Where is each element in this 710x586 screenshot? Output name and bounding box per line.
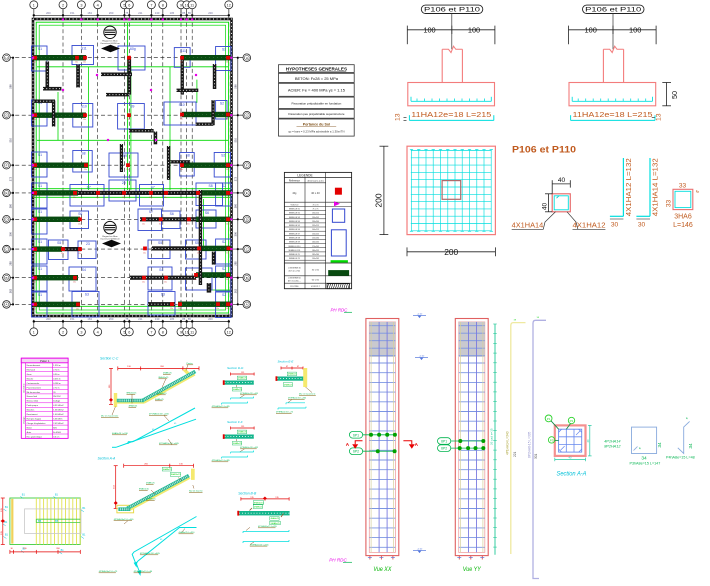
svg-text:4HA8e25: 4HA8e25 [284, 383, 293, 386]
svg-text:185x260: 185x260 [312, 254, 319, 256]
svg-text:1: 1 [33, 330, 35, 334]
svg-text:200: 200 [46, 317, 51, 321]
svg-text:SEMELLE S9: SEMELLE S9 [289, 242, 300, 244]
svg-text:100: 100 [468, 26, 480, 35]
svg-text:15x: 15x [187, 223, 190, 225]
svg-text:6: 6 [128, 3, 130, 7]
svg-text:200: 200 [208, 317, 213, 321]
svg-text:dimensions (cm): dimensions (cm) [307, 181, 323, 183]
svg-text:301: 301 [534, 453, 538, 459]
svg-text:40 x 40: 40 x 40 [311, 191, 320, 195]
svg-text:15x: 15x [127, 62, 130, 64]
svg-text:6P2: 6P2 [441, 447, 447, 451]
svg-text:7: 7 [150, 330, 152, 334]
svg-text:S2: S2 [222, 267, 226, 271]
svg-text:135: 135 [241, 372, 244, 374]
svg-text:15x: 15x [143, 252, 146, 254]
svg-text:6P1: 6P1 [353, 433, 359, 437]
svg-text:A: A [246, 303, 248, 307]
svg-text:B5: B5 [38, 519, 42, 523]
svg-text:13: 13 [656, 113, 663, 121]
svg-text:4HA8e25: 4HA8e25 [233, 388, 242, 391]
svg-text:33: 33 [665, 200, 672, 208]
svg-text:211: 211 [138, 11, 143, 15]
svg-text:4HA8e25: 4HA8e25 [238, 377, 247, 380]
svg-text:262: 262 [233, 288, 237, 293]
svg-text:Charge d'exploitation: Charge d'exploitation [27, 422, 46, 425]
svg-text:85: 85 [182, 11, 185, 15]
svg-text:P2: P2 [570, 419, 574, 423]
svg-text:262: 262 [8, 288, 12, 293]
svg-text:5.36 kN/m: 5.36 kN/m [53, 419, 62, 421]
svg-text:Contremarche: Contremarche [27, 382, 41, 385]
svg-text:11HA12e=18 L=215: 11HA12e=18 L=215 [573, 110, 653, 119]
svg-text:180x255: 180x255 [312, 250, 319, 252]
svg-text:200: 200 [208, 11, 213, 15]
svg-text:15x: 15x [142, 223, 145, 225]
svg-text:+0.00: +0.00 [419, 355, 425, 357]
svg-text:190x265: 190x265 [312, 258, 319, 260]
svg-text:30: 30 [611, 222, 619, 229]
svg-text:SEMELLE S11: SEMELLE S11 [288, 250, 300, 252]
svg-text:0.186 m: 0.186 m [53, 383, 61, 385]
svg-text:60g: 60g [130, 47, 136, 51]
svg-text:0.30 m: 0.30 m [53, 374, 59, 376]
svg-text:SEMELLE 23: SEMELLE 23 [289, 258, 300, 260]
svg-text:163: 163 [87, 11, 92, 15]
svg-text:75 x 75: 75 x 75 [312, 209, 318, 211]
svg-text:H: H [246, 56, 248, 60]
svg-text:Niveau initial: Niveau initial [27, 400, 39, 403]
svg-text:F: F [6, 164, 8, 168]
svg-text:40g: 40g [292, 192, 297, 195]
svg-text:Portance du Sol: Portance du Sol [303, 123, 330, 127]
svg-text:S9: S9 [123, 154, 127, 158]
svg-text:15x: 15x [197, 252, 200, 254]
svg-text:12: 12 [227, 330, 231, 334]
svg-text:1: 1 [33, 3, 35, 7]
svg-text:SEMELLE S8: SEMELLE S8 [289, 238, 300, 240]
svg-text:200: 200 [374, 193, 384, 207]
svg-text:4HA8e25: 4HA8e25 [163, 468, 172, 471]
svg-text:221: 221 [513, 451, 517, 457]
svg-text:VOIR PLT: VOIR PLT [311, 286, 321, 288]
svg-text:15x: 15x [226, 308, 229, 310]
svg-text:S1: S1 [38, 153, 42, 157]
svg-text:8: 8 [162, 330, 164, 334]
svg-text:Beton: Beton [27, 426, 32, 429]
svg-text:130: 130 [155, 317, 160, 321]
svg-text:15x: 15x [96, 197, 99, 199]
svg-text:85: 85 [182, 317, 185, 321]
svg-text:11: 11 [190, 3, 194, 7]
svg-text:2.42 kN/m2: 2.42 kN/m2 [53, 423, 64, 425]
svg-text:S6: S6 [78, 212, 82, 216]
svg-text:VOILE 20: VOILE 20 [291, 204, 299, 206]
svg-text:15x: 15x [164, 282, 167, 284]
svg-text:S2: S2 [222, 184, 226, 188]
svg-text:A: A [5, 303, 7, 307]
svg-text:S1: S1 [38, 267, 42, 271]
svg-text:Revetement: Revetement [27, 413, 38, 416]
svg-text:560: 560 [9, 84, 13, 89]
svg-text:S2: S2 [222, 293, 226, 297]
svg-text:15x: 15x [75, 62, 78, 64]
svg-text:S6: S6 [170, 212, 174, 216]
svg-text:15x: 15x [226, 279, 229, 281]
svg-text:Dallage: Dallage [53, 401, 61, 403]
svg-text:S11: S11 [81, 47, 87, 51]
svg-text:15x: 15x [33, 119, 36, 121]
svg-text:BETON: Fc28 = 25 MPa: BETON: Fc28 = 25 MPa [295, 76, 339, 81]
svg-text:34: 34 [688, 443, 694, 449]
svg-text:S1: S1 [38, 184, 42, 188]
svg-text:S2: S2 [222, 48, 226, 52]
svg-text:15x: 15x [142, 282, 145, 284]
svg-text:0.055 m: 0.055 m [53, 378, 61, 380]
svg-text:15x: 15x [164, 197, 167, 199]
svg-text:15x: 15x [226, 223, 229, 225]
svg-text:75: 75 [125, 317, 128, 321]
svg-text:4HA8e25: 4HA8e25 [288, 373, 297, 376]
svg-text:7: 7 [150, 3, 152, 7]
svg-text:4: 4 [97, 330, 99, 334]
svg-text:SEMELLE S6: SEMELLE S6 [289, 229, 300, 231]
svg-text:S8: S8 [186, 154, 190, 158]
svg-text:P1: P1 [547, 417, 551, 421]
svg-text:Section D-D: Section D-D [227, 366, 244, 370]
svg-text:E: E [5, 191, 7, 195]
svg-text:200: 200 [46, 11, 51, 15]
svg-text:170x245: 170x245 [312, 246, 319, 248]
svg-text:S6: S6 [205, 211, 209, 215]
svg-text:POUTRE: POUTRE [290, 286, 299, 288]
svg-text:15x: 15x [196, 197, 199, 199]
svg-text:8: 8 [162, 3, 164, 7]
svg-text:75: 75 [125, 11, 128, 15]
svg-text:Rampes d'appui: Rampes d'appui [27, 419, 42, 421]
svg-text:130x200: 130x200 [312, 221, 319, 223]
svg-text:Enr. geometrique: Enr. geometrique [27, 435, 43, 438]
svg-text:PH RDC: PH RDC [331, 308, 349, 313]
svg-text:Vue XX: Vue XX [373, 566, 392, 573]
svg-text:15x: 15x [159, 223, 162, 225]
svg-text:135: 135 [1, 530, 3, 534]
svg-text:PH RDC: PH RDC [53, 396, 61, 398]
svg-text:15x: 15x [76, 308, 79, 310]
svg-text:30: 30 [638, 222, 646, 229]
svg-text:S2: S2 [222, 240, 226, 244]
svg-text:12: 12 [227, 3, 231, 7]
svg-text:15x: 15x [216, 308, 219, 310]
svg-text:11HA12e=18 L=215: 11HA12e=18 L=215 [411, 110, 491, 119]
svg-text:S4: S4 [159, 268, 163, 272]
svg-text:15x: 15x [78, 223, 81, 225]
svg-text:15x: 15x [194, 279, 197, 281]
svg-text:S2: S2 [220, 102, 224, 106]
svg-text:4X1HA12: 4X1HA12 [573, 220, 606, 229]
svg-text:9: 9 [180, 330, 182, 334]
svg-text:E: E [246, 191, 248, 195]
svg-text:151: 151 [70, 317, 75, 321]
svg-text:P4hA8e=15 L=48: P4hA8e=15 L=48 [666, 456, 695, 460]
svg-text:Section A-A: Section A-A [557, 471, 588, 478]
svg-text:+0.00: +0.00 [417, 313, 423, 315]
svg-text:285: 285 [233, 261, 237, 266]
svg-text:11: 11 [190, 330, 194, 334]
svg-text:(B.T.2) L≥60+...: (B.T.2) L≥60+... [288, 280, 301, 283]
svg-text:67: 67 [286, 366, 288, 368]
svg-text:S1: S1 [38, 240, 42, 244]
svg-text:Section B-B: Section B-B [238, 492, 257, 496]
svg-text:Ouverture 60X60cm: Ouverture 60X60cm [100, 42, 120, 45]
svg-text:Giron: Giron [27, 374, 32, 376]
svg-text:6P1: 6P1 [441, 440, 447, 444]
svg-text:15x: 15x [83, 62, 86, 64]
svg-text:SEMELLE 29: SEMELLE 29 [289, 254, 300, 256]
svg-text:560: 560 [233, 84, 237, 89]
svg-text:15x: 15x [73, 282, 76, 284]
svg-text:8HA10e15: 8HA10e15 [254, 501, 264, 504]
svg-text:151: 151 [70, 11, 75, 15]
svg-text:P3hA8e=15 L=147: P3hA8e=15 L=147 [630, 462, 661, 466]
svg-text:B5: B5 [55, 519, 59, 523]
svg-text:Fe E500: Fe E500 [53, 432, 61, 434]
svg-text:2.70 m: 2.70 m [53, 370, 59, 372]
svg-text:Marches: Marches [27, 410, 35, 412]
svg-text:163: 163 [87, 317, 92, 321]
svg-text:S3: S3 [161, 293, 165, 297]
svg-text:272: 272 [233, 176, 237, 181]
svg-text:1.00 kN/m2: 1.00 kN/m2 [53, 414, 64, 416]
svg-text:4.31 kN/m2: 4.31 kN/m2 [53, 405, 64, 407]
svg-text:40: 40 [558, 177, 566, 184]
svg-text:Poids propre: Poids propre [27, 405, 39, 407]
svg-text:4X1HA14 L=132: 4X1HA14 L=132 [652, 158, 659, 216]
svg-text:13: 13 [395, 113, 402, 121]
svg-text:P3: P3 [550, 438, 554, 442]
svg-text:155x230: 155x230 [312, 238, 319, 240]
svg-text:4HA8e25: 4HA8e25 [233, 442, 242, 445]
svg-text:P106 et P110: P106 et P110 [512, 145, 576, 156]
svg-text:2.72 m: 2.72 m [53, 387, 59, 389]
svg-text:qu = bars = 0.23 MPa admissibl: qu = bars = 0.23 MPa admissible a 1.30m/… [288, 130, 344, 134]
svg-text:SEMELLE S4: SEMELLE S4 [289, 221, 300, 223]
svg-text:15x: 15x [170, 308, 173, 310]
svg-text:15x: 15x [33, 197, 36, 199]
svg-text:S10: S10 [179, 103, 185, 107]
svg-text:510: 510 [233, 137, 237, 142]
svg-text:S1: S1 [38, 47, 42, 51]
svg-text:105: 105 [170, 11, 175, 15]
svg-text:23: 23 [86, 242, 90, 246]
svg-text:6: 6 [128, 330, 130, 334]
svg-text:15x: 15x [78, 253, 81, 255]
svg-text:200: 200 [444, 247, 458, 257]
svg-text:15x: 15x [33, 62, 36, 64]
svg-text:S5: S5 [158, 241, 162, 245]
svg-text:Marche: Marche [27, 378, 35, 380]
svg-text:S5: S5 [195, 241, 199, 245]
svg-text:8P2HA12: 8P2HA12 [604, 445, 621, 449]
svg-text:70 x 70: 70 x 70 [312, 204, 318, 206]
svg-text:Vue YY: Vue YY [463, 566, 482, 573]
svg-text:SEMELLE S10: SEMELLE S10 [288, 246, 300, 248]
svg-text:Reference: Reference [289, 180, 301, 183]
svg-text:S8: S8 [81, 152, 85, 156]
svg-text:100: 100 [423, 26, 435, 35]
svg-text:60 x 60: 60 x 60 [312, 279, 320, 281]
svg-text:Geometrie: Geometrie [23, 383, 26, 393]
svg-text:140x215: 140x215 [312, 229, 319, 231]
svg-text:3.3 cm: 3.3 cm [53, 436, 59, 438]
svg-text:4X1HA14: 4X1HA14 [512, 220, 544, 229]
svg-text:15x: 15x [61, 253, 64, 255]
svg-text:SEMELLE S5: SEMELLE S5 [289, 225, 300, 227]
svg-text:100: 100 [585, 26, 597, 35]
svg-text:4: 4 [97, 3, 99, 7]
svg-text:15x: 15x [126, 169, 129, 171]
svg-text:SEMELLE S2: SEMELLE S2 [289, 213, 300, 215]
svg-text:15x: 15x [226, 252, 229, 254]
svg-text:15x: 15x [178, 308, 181, 310]
svg-text:S3: S3 [85, 293, 89, 297]
svg-text:P106 et P110: P106 et P110 [424, 7, 480, 14]
svg-text:15x: 15x [226, 62, 229, 64]
svg-text:100: 100 [629, 26, 641, 35]
svg-text:4P1HA14 L=340: 4P1HA14 L=340 [506, 431, 510, 455]
svg-text:SEMELLE S3: SEMELLE S3 [289, 217, 300, 219]
svg-text:160x235: 160x235 [312, 242, 319, 244]
svg-text:Palier 1: Palier 1 [40, 359, 50, 363]
svg-text:PH RDC: PH RDC [329, 558, 347, 563]
svg-text:15x: 15x [83, 119, 86, 121]
svg-text:Franchissement: Franchissement [27, 386, 42, 389]
svg-text:8HA10e15: 8HA10e15 [171, 473, 181, 476]
svg-text:15x: 15x [33, 282, 36, 284]
svg-text:Section C-C: Section C-C [100, 357, 119, 361]
svg-text:272: 272 [9, 176, 13, 181]
svg-text:SEMELLE S1: SEMELLE S1 [289, 209, 300, 211]
svg-text:ACIER: Fe = 400 MPa γs = 1.: ACIER: Fe = 400 MPa γs = 1.15 [288, 88, 346, 93]
svg-text:4X1HA12 L=132: 4X1HA12 L=132 [626, 158, 633, 216]
svg-text:29: 29 [122, 181, 126, 185]
svg-text:260: 260 [9, 203, 13, 208]
svg-text:B: B [5, 276, 7, 280]
svg-text:130: 130 [155, 11, 160, 15]
svg-text:Fissuration préjudiciable en f: Fissuration préjudiciable en fondation [292, 102, 342, 106]
svg-text:15x: 15x [180, 62, 183, 64]
svg-text:S8: S8 [209, 184, 213, 188]
svg-text:LONGRINE 60: LONGRINE 60 [288, 278, 301, 280]
svg-text:S5: S5 [57, 241, 61, 245]
svg-text:Section E-E: Section E-E [278, 360, 295, 364]
svg-text:Fissuration peu préjudiciable: Fissuration peu préjudiciable superstruc… [288, 112, 344, 116]
svg-text:8P2HA8-15 L=335: 8P2HA8-15 L=335 [528, 431, 532, 458]
svg-text:2: 2 [62, 330, 64, 334]
svg-text:S4: S4 [82, 268, 86, 272]
svg-text:StHA8e25: StHA8e25 [271, 522, 281, 525]
svg-text:15x: 15x [84, 169, 87, 171]
svg-text:300: 300 [9, 231, 13, 236]
svg-text:300: 300 [233, 231, 237, 236]
svg-text:B: B [246, 276, 248, 280]
svg-text:211: 211 [138, 317, 143, 321]
svg-text:50: 50 [670, 91, 679, 99]
svg-text:3HA6: 3HA6 [674, 213, 692, 220]
svg-text:S7: S7 [149, 210, 153, 214]
svg-text:15x: 15x [33, 169, 36, 171]
svg-text:Emmarch: Emmarch [27, 370, 36, 372]
svg-text:15x: 15x [226, 119, 229, 121]
svg-text:S7: S7 [87, 186, 91, 190]
svg-text:15x: 15x [180, 169, 183, 171]
svg-text:Ouverture 60X60cm: Ouverture 60X60cm [100, 238, 120, 241]
svg-text:LONGRINE 30: LONGRINE 30 [288, 267, 301, 269]
svg-text:15x: 15x [149, 197, 152, 199]
svg-text:15x: 15x [122, 197, 125, 199]
svg-text:Niveau final: Niveau final [27, 396, 38, 398]
svg-text:S1: S1 [38, 210, 42, 214]
svg-text:285: 285 [9, 261, 13, 266]
svg-text:Encombrement: Encombrement [27, 364, 41, 367]
svg-text:3: 3 [80, 330, 82, 334]
svg-text:130x205: 130x205 [312, 217, 319, 219]
svg-text:135: 135 [241, 426, 244, 428]
svg-text:105: 105 [170, 317, 175, 321]
svg-text:26 cad e=15: 26 cad e=15 [489, 428, 493, 445]
svg-text:150x225: 150x225 [312, 233, 319, 235]
svg-text:40: 40 [542, 203, 549, 211]
svg-text:15x: 15x [33, 253, 36, 255]
svg-text:2: 2 [62, 3, 64, 7]
svg-text:LEGENDE: LEGENDE [297, 173, 312, 177]
svg-text:15x: 15x [127, 119, 130, 121]
svg-text:33: 33 [679, 182, 687, 189]
svg-text:1.36 kN/m2: 1.36 kN/m2 [53, 410, 64, 412]
svg-text:S7: S7 [151, 186, 155, 190]
svg-text:1.350 m: 1.350 m [53, 365, 61, 367]
svg-text:34: 34 [657, 442, 663, 448]
svg-text:S11: S11 [180, 49, 186, 53]
svg-text:Charges: Charges [24, 416, 26, 424]
svg-text:510: 510 [9, 137, 13, 142]
svg-text:S2: S2 [221, 154, 225, 158]
svg-text:130x210: 130x210 [312, 213, 319, 215]
svg-text:15x: 15x [33, 308, 36, 310]
svg-text:135: 135 [1, 507, 3, 511]
svg-text:15x: 15x [226, 169, 229, 171]
svg-text:260: 260 [233, 203, 237, 208]
svg-text:S9: S9 [130, 105, 134, 109]
svg-text:F: F [246, 164, 248, 168]
svg-text:Section A-A: Section A-A [98, 457, 117, 461]
svg-text:4HA8e25: 4HA8e25 [271, 517, 280, 520]
svg-text:Section F-F: Section F-F [227, 420, 243, 424]
svg-text:85: 85 [188, 317, 191, 321]
svg-text:260: 260 [109, 317, 114, 321]
svg-text:(B.T.1) L≥T42: (B.T.1) L≥T42 [289, 269, 300, 272]
svg-text:260: 260 [109, 11, 114, 15]
svg-text:4P1HA14: 4P1HA14 [604, 440, 620, 444]
svg-text:SEMELLE S7: SEMELLE S7 [289, 233, 300, 235]
svg-text:4HA8e25: 4HA8e25 [254, 505, 263, 508]
svg-text:Regard en Bton: Regard en Bton [102, 40, 118, 43]
svg-text:6P2: 6P2 [353, 450, 359, 454]
svg-text:15x: 15x [73, 197, 76, 199]
svg-text:+0.00: +0.00 [417, 548, 423, 550]
svg-text:3: 3 [80, 3, 82, 7]
